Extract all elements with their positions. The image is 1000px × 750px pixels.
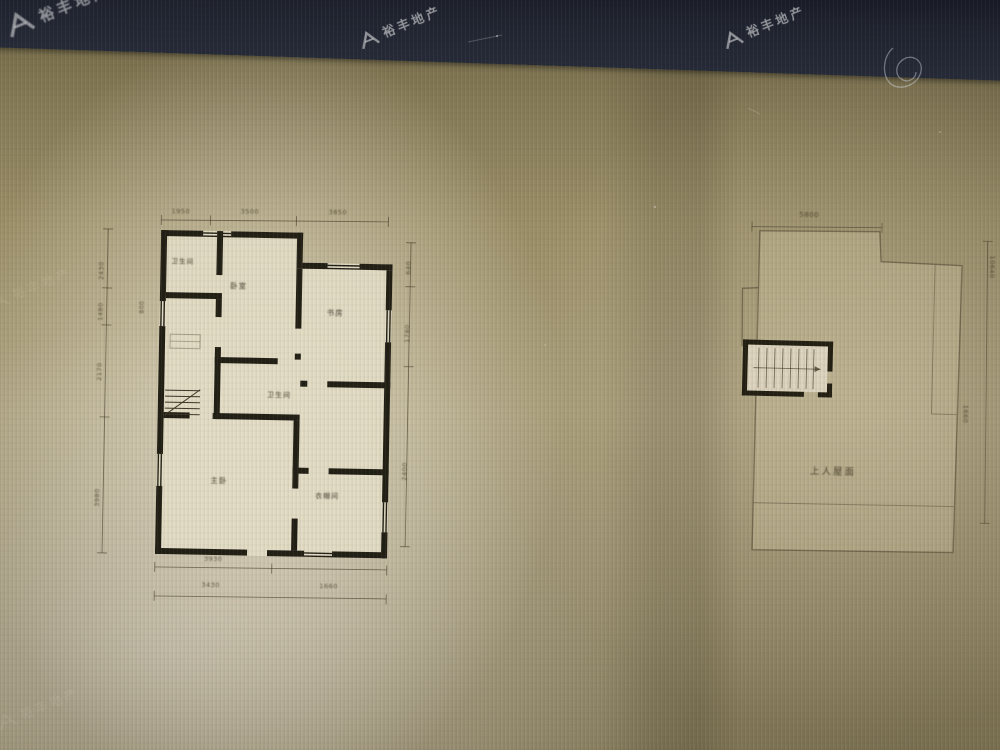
vignette-shadow (0, 0, 1000, 750)
floorplan-photo: 裕丰地产 裕丰地产 裕丰地产 裕丰地产 裕丰地产 (0, 0, 1000, 750)
